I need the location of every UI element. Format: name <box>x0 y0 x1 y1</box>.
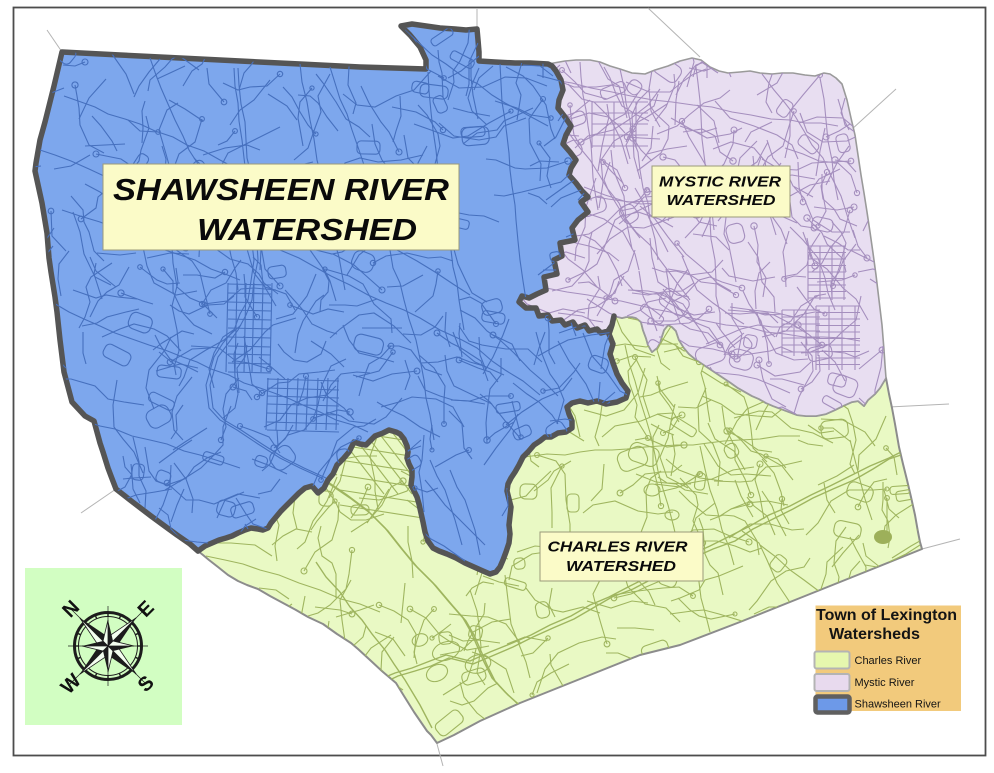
svg-text:Charles River: Charles River <box>855 655 922 667</box>
svg-text:Town of Lexington: Town of Lexington <box>816 607 957 624</box>
svg-text:Watersheds: Watersheds <box>829 626 920 643</box>
svg-text:WATERSHED: WATERSHED <box>667 192 776 209</box>
svg-text:MYSTIC RIVER: MYSTIC RIVER <box>659 174 781 191</box>
svg-text:WATERSHED: WATERSHED <box>197 212 417 247</box>
svg-text:Shawsheen River: Shawsheen River <box>855 699 942 711</box>
svg-text:CHARLES RIVER: CHARLES RIVER <box>548 539 688 556</box>
svg-text:WATERSHED: WATERSHED <box>566 558 676 575</box>
svg-text:SHAWSHEEN RIVER: SHAWSHEEN RIVER <box>113 172 450 207</box>
svg-text:Mystic River: Mystic River <box>855 677 915 689</box>
